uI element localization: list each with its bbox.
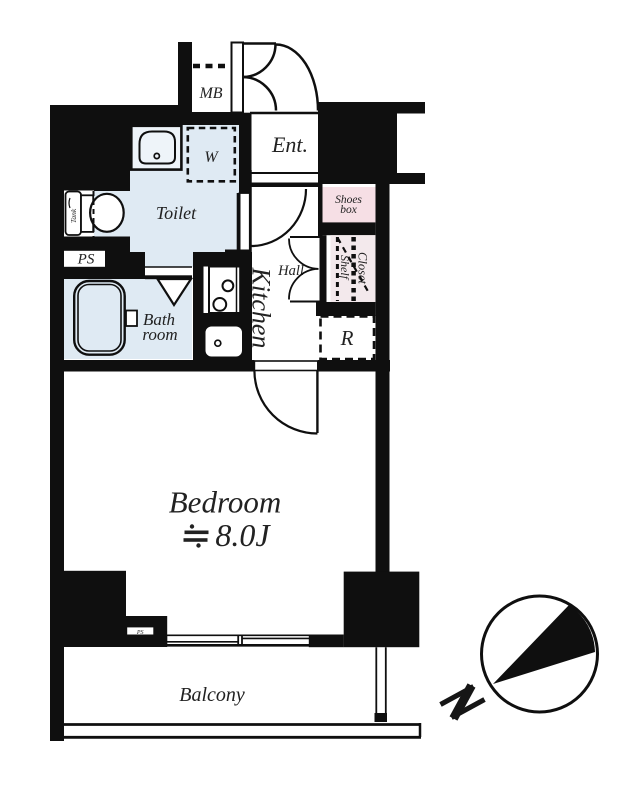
svg-text:box: box [340,204,358,216]
svg-text:Shelf: Shelf [338,255,352,281]
svg-text:W: W [204,149,219,166]
svg-text:Kitchen: Kitchen [247,267,276,349]
svg-text:Closet: Closet [356,252,370,284]
svg-text:Balcony: Balcony [179,684,245,706]
svg-text:Bedroom: Bedroom [169,485,282,520]
svg-text:8.0J: 8.0J [215,517,271,553]
svg-text:Tank: Tank [69,208,78,223]
svg-text:room: room [142,325,177,344]
svg-text:PS: PS [77,252,95,268]
svg-text:MB: MB [198,85,222,102]
svg-text:Toilet: Toilet [156,203,197,223]
svg-text:R: R [340,326,354,350]
svg-text:Ent.: Ent. [271,132,308,157]
